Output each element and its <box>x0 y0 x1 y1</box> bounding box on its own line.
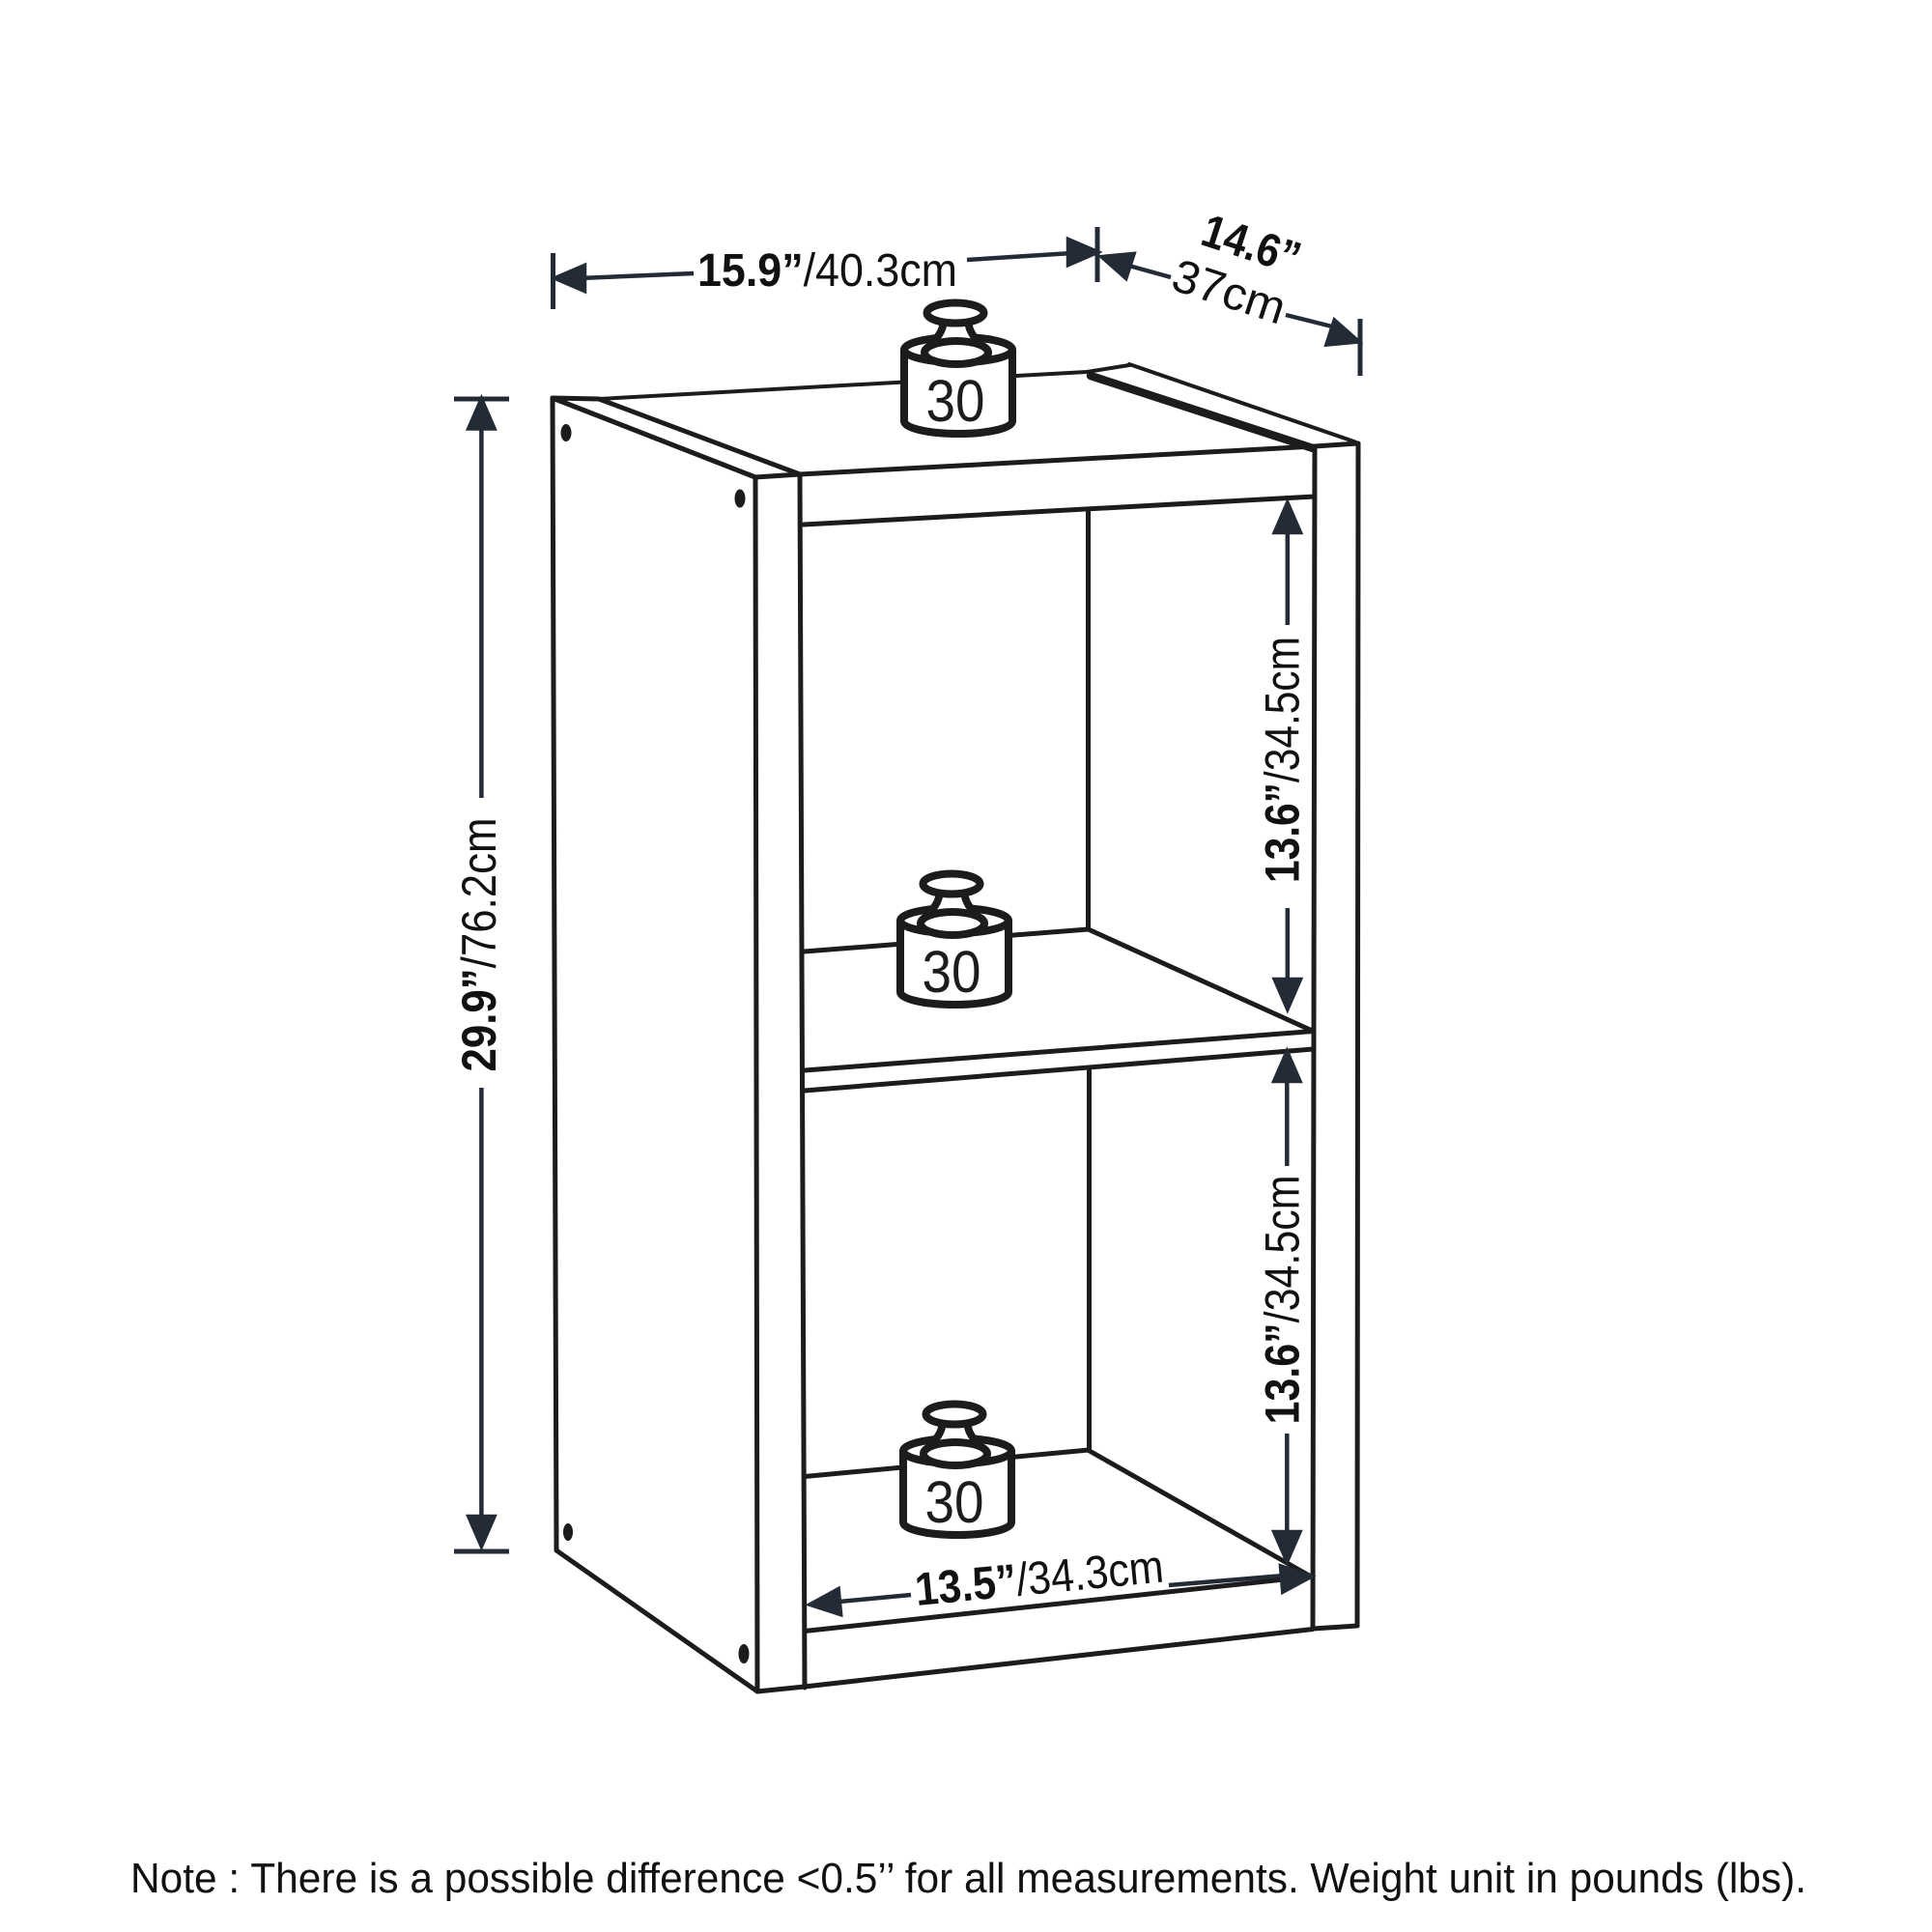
svg-text:29.9”/76.2cm: 29.9”/76.2cm <box>452 818 506 1072</box>
svg-text:13.6”/34.5cm: 13.6”/34.5cm <box>1256 1176 1310 1425</box>
svg-text:15.9”/40.3cm: 15.9”/40.3cm <box>697 245 957 297</box>
svg-text:13.6”/34.5cm: 13.6”/34.5cm <box>1256 637 1310 883</box>
svg-text:Note : There is a possible dif: Note : There is a possible difference <0… <box>130 1855 1806 1902</box>
